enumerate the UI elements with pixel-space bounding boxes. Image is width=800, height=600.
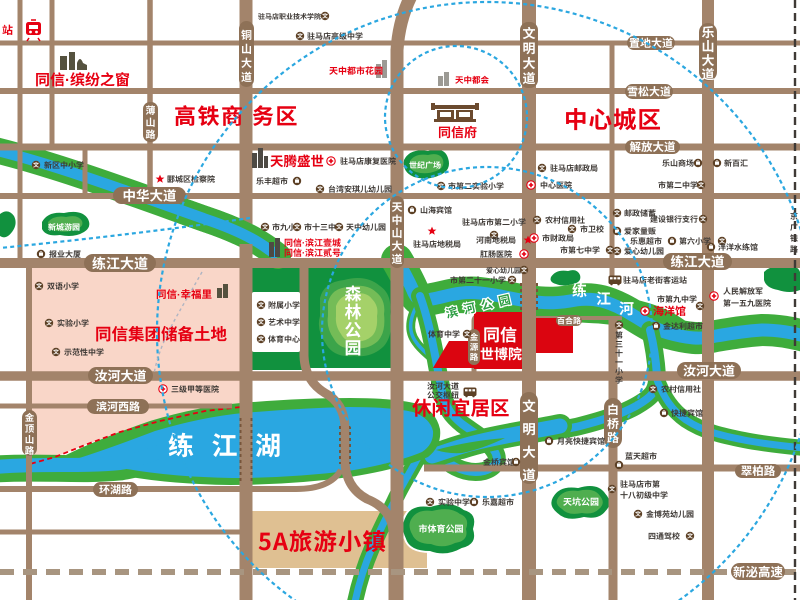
svg-text:附属小学: 附属小学 (268, 300, 300, 311)
svg-text:海洋馆: 海洋馆 (653, 303, 686, 319)
svg-text:文: 文 (522, 395, 536, 415)
svg-text:金博苑幼儿园: 金博苑幼儿园 (646, 509, 694, 520)
svg-text:道: 道 (522, 464, 536, 484)
svg-text:环湖路: 环湖路 (99, 482, 132, 498)
svg-text:市第二实验小学: 市第二实验小学 (448, 181, 504, 192)
svg-text:市财政局: 市财政局 (542, 233, 574, 244)
svg-text:实验小学: 实验小学 (57, 318, 89, 329)
svg-text:天中幼儿园: 天中幼儿园 (346, 222, 386, 233)
svg-text:园: 园 (345, 334, 362, 359)
svg-text:体育中心: 体育中心 (268, 334, 300, 345)
svg-text:四通驾校: 四通驾校 (648, 531, 680, 542)
svg-text:十八初级中学: 十八初级中学 (620, 490, 668, 501)
svg-text:铁: 铁 (790, 233, 798, 244)
svg-text:同信·滨江贰号: 同信·滨江贰号 (284, 246, 341, 259)
svg-text:泮洋水练馆: 泮洋水练馆 (718, 242, 758, 253)
svg-text:实验中学: 实验中学 (438, 497, 470, 508)
svg-text:路: 路 (146, 126, 156, 141)
svg-text:新区中小学: 新区中小学 (44, 160, 84, 171)
svg-text:山海宾馆: 山海宾馆 (420, 205, 452, 216)
svg-text:双语小学: 双语小学 (47, 281, 79, 292)
svg-text:练江大道: 练江大道 (92, 254, 148, 274)
svg-text:示范性中学: 示范性中学 (64, 347, 104, 358)
svg-text:天中都市花园: 天中都市花园 (329, 64, 383, 77)
svg-text:乐山商场: 乐山商场 (662, 158, 694, 169)
svg-text:同信: 同信 (483, 321, 517, 346)
svg-text:乐嘉超市: 乐嘉超市 (482, 497, 514, 508)
svg-text:蓝天超市: 蓝天超市 (625, 451, 657, 462)
svg-text:江: 江 (596, 288, 611, 309)
svg-text:路: 路 (25, 443, 35, 457)
svg-text:5A旅游小镇: 5A旅游小镇 (258, 523, 387, 557)
svg-text:驻马店高级中学: 驻马店高级中学 (307, 31, 363, 42)
svg-text:广: 广 (790, 222, 798, 233)
svg-text:中华大道: 中华大道 (123, 185, 177, 205)
svg-text:市体育公园: 市体育公园 (418, 522, 463, 535)
svg-text:路: 路 (607, 429, 619, 446)
svg-text:站: 站 (2, 22, 13, 38)
svg-text:路: 路 (790, 244, 798, 255)
svg-text:雪松大道: 雪松大道 (627, 84, 671, 100)
svg-text:乐丰超市: 乐丰超市 (256, 176, 288, 187)
svg-text:路: 路 (470, 351, 479, 363)
svg-text:道: 道 (241, 69, 252, 85)
svg-text:新城游园: 新城游园 (48, 222, 80, 233)
svg-text:市第二中学: 市第二中学 (658, 180, 698, 191)
svg-text:天腾盛世: 天腾盛世 (270, 150, 324, 170)
svg-text:道: 道 (392, 251, 403, 267)
svg-text:驻马店职业技术学院: 驻马店职业技术学院 (258, 12, 321, 22)
svg-text:练江湖: 练江湖 (168, 426, 299, 463)
svg-text:市第七中学: 市第七中学 (560, 245, 600, 256)
svg-text:中心城区: 中心城区 (564, 101, 662, 135)
svg-text:世博院: 世博院 (480, 344, 522, 364)
svg-text:学: 学 (615, 375, 623, 386)
svg-text:金桥宾馆: 金桥宾馆 (483, 457, 515, 468)
svg-text:明: 明 (522, 418, 536, 438)
svg-text:汝河大道: 汝河大道 (94, 366, 146, 385)
svg-text:高铁商: 高铁商 (174, 99, 245, 131)
svg-text:体育中学: 体育中学 (428, 329, 460, 340)
svg-text:驻马店康复医院: 驻马店康复医院 (340, 156, 396, 167)
svg-text:百合路: 百合路 (557, 316, 581, 327)
svg-text:务区: 务区 (252, 99, 299, 131)
svg-text:肛肠医院: 肛肠医院 (480, 249, 512, 260)
svg-text:驻马店地税局: 驻马店地税局 (413, 239, 461, 250)
svg-text:同信集团储备土地: 同信集团储备土地 (95, 321, 228, 345)
svg-text:农村信用社: 农村信用社 (661, 384, 701, 395)
svg-text:农村信用社: 农村信用社 (545, 215, 585, 226)
svg-text:同信·幸福里: 同信·幸福里 (156, 287, 212, 302)
svg-text:新百汇: 新百汇 (724, 158, 748, 169)
svg-text:中心医院: 中心医院 (540, 180, 572, 191)
svg-text:大: 大 (522, 441, 536, 461)
svg-text:郾城区检察院: 郾城区检察院 (167, 174, 215, 185)
svg-text:同信·缤纷之窗: 同信·缤纷之窗 (35, 69, 130, 90)
svg-text:市九小: 市九小 (272, 222, 296, 233)
svg-text:市第二十一小学: 市第二十一小学 (450, 275, 506, 286)
svg-text:新泌高速: 新泌高速 (733, 562, 784, 581)
svg-text:市十三中: 市十三中 (304, 222, 336, 233)
svg-text:市卫校: 市卫校 (580, 224, 604, 235)
svg-text:报业大厦: 报业大厦 (49, 249, 81, 260)
svg-text:同信府: 同信府 (438, 122, 477, 141)
svg-text:月亮快捷宾馆: 月亮快捷宾馆 (557, 436, 605, 447)
svg-text:人民解放军: 人民解放军 (723, 286, 763, 297)
svg-text:翠柏路: 翠柏路 (741, 463, 776, 479)
svg-text:驻马店老街客运站: 驻马店老街客运站 (623, 275, 687, 286)
svg-text:驻马店市第: 驻马店市第 (620, 479, 660, 490)
svg-text:汝河大道: 汝河大道 (683, 361, 735, 380)
svg-text:天坑公园: 天坑公园 (563, 495, 599, 508)
svg-text:休闲宜居区: 休闲宜居区 (412, 392, 510, 421)
svg-text:练江大道: 练江大道 (671, 251, 725, 271)
svg-text:驻马店市第二小学: 驻马店市第二小学 (462, 217, 526, 228)
svg-text:道: 道 (701, 64, 714, 83)
svg-text:建设银行支行: 建设银行支行 (650, 214, 698, 225)
svg-text:河: 河 (619, 298, 634, 319)
svg-text:快捷宾馆: 快捷宾馆 (671, 408, 703, 419)
svg-text:天中都会: 天中都会 (455, 74, 490, 86)
svg-text:爱心幼儿园: 爱心幼儿园 (486, 266, 521, 276)
svg-text:台湾安琪儿幼儿园: 台湾安琪儿幼儿园 (328, 184, 392, 195)
svg-text:世纪广场: 世纪广场 (409, 160, 441, 171)
svg-text:驻马店邮政局: 驻马店邮政局 (550, 163, 598, 174)
svg-text:第六小学: 第六小学 (679, 236, 711, 247)
svg-text:解放大道: 解放大道 (630, 139, 676, 155)
svg-text:道: 道 (522, 68, 535, 87)
svg-text:艺术中学: 艺术中学 (268, 317, 300, 328)
svg-text:三级甲等医院: 三级甲等医院 (171, 384, 219, 395)
svg-text:练: 练 (572, 280, 587, 301)
svg-text:河南地税局: 河南地税局 (476, 235, 516, 246)
svg-text:金达利超市: 金达利超市 (663, 321, 703, 332)
svg-text:滨河西路: 滨河西路 (96, 399, 140, 415)
svg-text:第一五九医院: 第一五九医院 (723, 298, 771, 309)
